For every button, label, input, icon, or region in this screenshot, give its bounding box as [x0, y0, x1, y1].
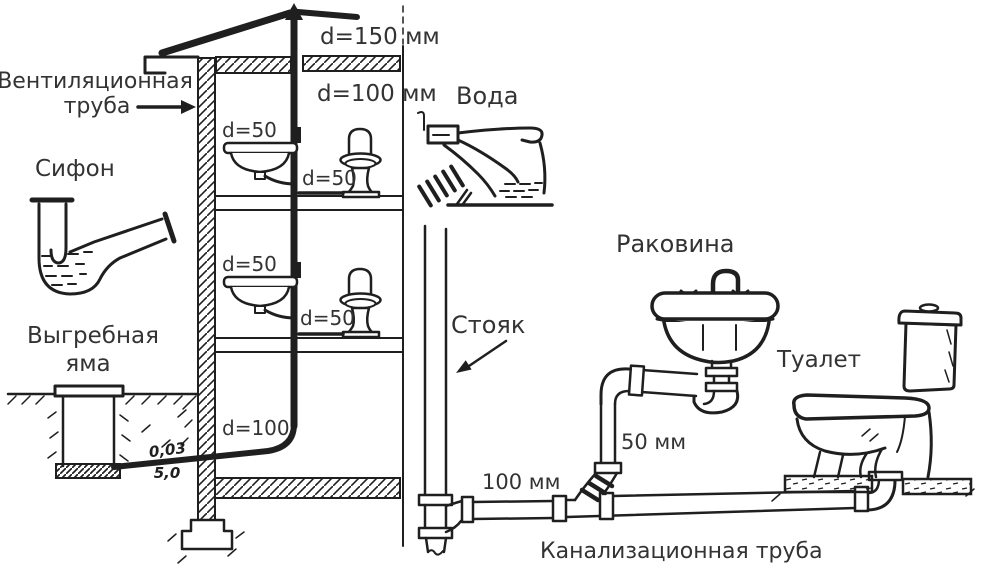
label-slope-length: 5,0	[154, 464, 181, 482]
water-closet-drawing	[418, 112, 552, 205]
label-cesspool-line2: яма	[65, 351, 110, 377]
toilet-rear-inner	[897, 416, 905, 452]
pit-bottom	[56, 464, 120, 478]
diagram-canvas: Вентиляционная труба Сифон Выгребная яма…	[0, 0, 1000, 575]
riser-branch-f1	[291, 127, 301, 143]
label-sewer: Канализационная труба	[540, 539, 823, 564]
siphon-drawing	[32, 200, 174, 294]
wc-flush-channel-a	[458, 140, 518, 182]
foundation	[182, 520, 232, 549]
sewer-coupling-mid	[600, 493, 613, 519]
sink-bowl	[664, 322, 769, 363]
float-valve-hook	[418, 112, 424, 130]
wc-foot-lines	[457, 190, 471, 204]
trap-outer	[694, 391, 738, 413]
toilet-bowl-hatch	[862, 429, 878, 441]
floor-slab-left	[785, 476, 872, 492]
riser-pipe-walls	[425, 226, 446, 495]
label-dim-riser-bottom: d=100	[222, 416, 290, 440]
branch-elbow-inner	[615, 391, 629, 404]
label-pipe-50: 50 мм	[621, 430, 686, 454]
wc-right-side	[540, 143, 545, 193]
label-siphon: Сифон	[35, 156, 115, 182]
label-dim-sink-f2: d=50	[222, 252, 277, 276]
riser-socket-2	[419, 528, 452, 538]
siphon-water-dashes	[42, 252, 92, 285]
ground-slab	[215, 478, 400, 498]
riser-pipe-mid	[425, 505, 446, 528]
toilet-seat	[794, 395, 929, 419]
pit-walls	[63, 396, 114, 466]
wc-top-rim	[458, 128, 542, 142]
branch-coupling	[629, 366, 644, 396]
ceiling-slab-right	[303, 56, 400, 71]
label-dim-roof: d=150 мм	[320, 24, 440, 50]
plumbing-diagram: Вентиляционная труба Сифон Выгребная яма…	[0, 0, 1000, 575]
floor-slab-right	[903, 479, 971, 494]
label-dim-toilet-f1: d=50	[302, 166, 357, 190]
roof-right	[298, 12, 357, 17]
siphon-outer-wall	[39, 204, 166, 294]
label-riser: Стояк	[451, 311, 525, 339]
label-water: Вода	[456, 82, 518, 110]
sink-floor2	[224, 277, 297, 313]
wc-water-dashes	[500, 183, 542, 197]
label-dim-toilet-f2: d=50	[300, 306, 355, 330]
trap-inner	[704, 391, 714, 404]
label-dim-sink-f1: d=50	[222, 118, 277, 142]
riser-detail	[419, 226, 473, 555]
pit-cap	[55, 386, 123, 396]
roof-left	[162, 13, 290, 53]
wc-corrugated-inlet	[419, 167, 463, 206]
riser-break-squiggle	[428, 550, 443, 554]
label-cesspool-line1: Выгребная	[27, 323, 159, 349]
riser-pipe-end	[426, 538, 446, 552]
label-pipe-100: 100 мм	[482, 470, 560, 494]
sink-detail-drawing	[575, 271, 778, 500]
label-vent-pipe-line1: Вентиляционная	[0, 69, 193, 94]
sewer-bottom-line	[473, 508, 855, 519]
toilet-outlet-flange	[869, 472, 902, 480]
riser-tee-socket	[462, 497, 473, 522]
toilet-front-leg	[814, 452, 843, 477]
sink-rim	[652, 293, 778, 319]
sewer-coupling-left	[553, 496, 566, 521]
label-dim-attic: d=100 мм	[317, 81, 437, 107]
label-vent-pipe-line2: труба	[64, 94, 131, 119]
floor-slab-2	[215, 338, 403, 352]
riser-label-arrow-line	[466, 341, 506, 368]
riser-label-arrowhead	[456, 360, 472, 373]
cistern-lid	[899, 311, 961, 325]
pipe-50mm-socket	[595, 463, 621, 473]
label-toilet: Туалет	[776, 347, 861, 373]
vent-label-arrowhead	[181, 100, 196, 114]
pipe-50mm-walls	[601, 404, 615, 463]
drain-coupling-2	[706, 383, 737, 391]
siphon-outlet-flare	[165, 214, 174, 241]
sink-floor1	[224, 143, 297, 179]
toilet-belly	[797, 419, 885, 454]
riser-branch-f2	[291, 262, 301, 278]
left-wall	[198, 58, 215, 520]
ceiling-slab-left	[216, 57, 291, 73]
drain-coupling-1	[706, 368, 737, 376]
label-sink: Раковина	[616, 230, 735, 258]
riser-socket-1	[419, 495, 452, 505]
toilet-rear-edge	[928, 412, 931, 477]
cistern-knob	[920, 305, 938, 312]
siphon-dip-tube	[51, 204, 66, 263]
